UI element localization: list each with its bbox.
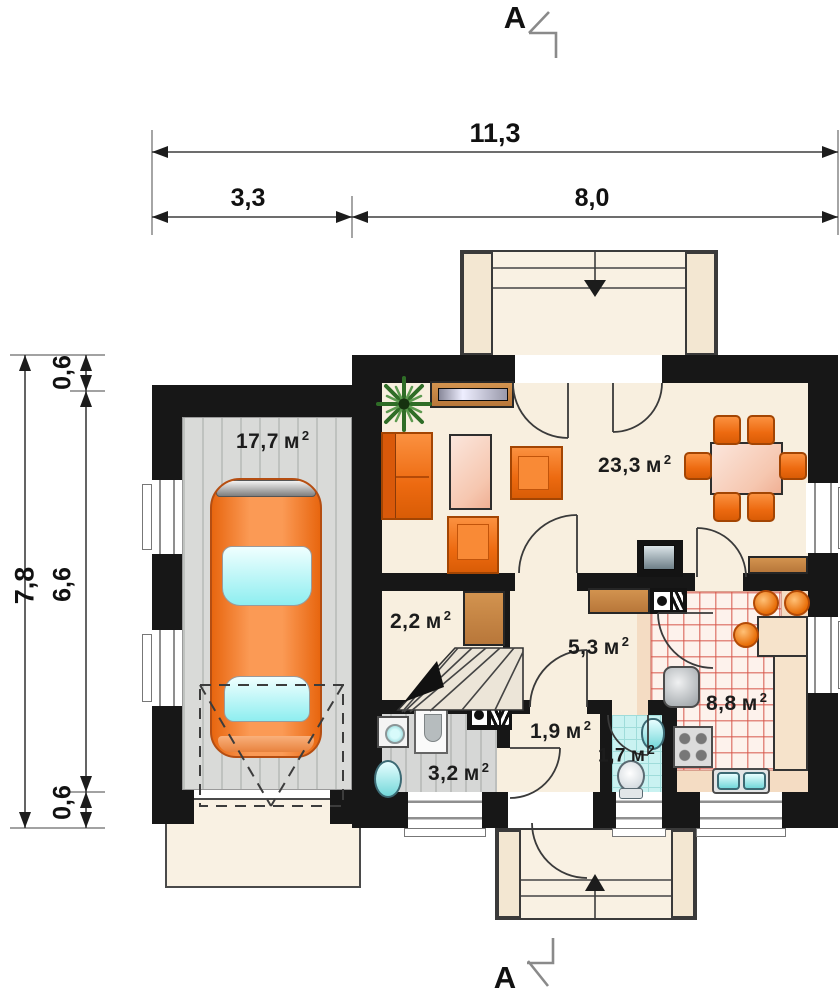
terrace-double-door [513,383,662,438]
area-sup: 2 [664,452,672,467]
dim-total-width: 11,3 [452,118,538,149]
area-sup: 2 [482,760,490,775]
area-unit: м [646,454,662,477]
room-area-value: 1,9 [530,720,561,743]
dim-interior-height: 6,6 [49,550,78,620]
room-label-kitchen: 8,8м2 [706,690,767,716]
dim-garage-width: 3,3 [213,184,283,213]
area-sup: 2 [647,742,655,757]
area-sup: 2 [622,634,630,649]
plant-icon [378,378,430,430]
area-sup: 2 [584,718,592,733]
dim-wall-top: 0,6 [49,338,78,408]
room-label-vestibule: 1,9м2 [530,718,591,744]
area-sup: 2 [444,608,452,623]
dimension-line-vertical-segments [80,355,92,828]
section-label-bottom: A [482,960,528,996]
area-unit: м [604,636,620,659]
stairs [398,648,523,712]
room-area-value: 1,7 [598,745,626,766]
room-label-hall: 5,3м2 [568,634,629,660]
plan-linework [0,0,840,1000]
area-unit: м [464,762,480,785]
room-area-value: 17,7 [236,430,279,453]
garage-door-swing [200,685,343,806]
kitchen-hall-door [658,613,713,668]
area-sup: 2 [302,428,310,443]
porch-steps [521,874,671,918]
dimension-ticks [10,130,838,828]
room-area-value: 3,2 [428,762,459,785]
room-label-bathroom: 3,2м2 [428,760,489,786]
room-area-value: 23,3 [598,454,641,477]
floor-plan: A A 11,3 3,3 8,0 7,8 0,6 6,6 0,6 17,7м2 … [0,0,840,1000]
dim-house-width: 8,0 [557,184,627,213]
living-hall-door [519,515,577,573]
area-sup: 2 [760,690,768,705]
room-label-garage: 17,7м2 [236,428,310,454]
entry-arrow-up-icon [585,874,605,891]
entrance-door [532,823,587,878]
bathroom-door [510,748,560,798]
room-label-wc: 1,7м2 [598,742,655,767]
room-label-storage: 2,2м2 [390,608,451,634]
area-unit: м [426,610,442,633]
room-area-value: 5,3 [568,636,599,659]
room-area-value: 2,2 [390,610,421,633]
room-label-living-dining: 23,3м2 [598,452,672,478]
area-unit: м [742,692,758,715]
terrace-steps [493,252,685,297]
area-unit: м [566,720,582,743]
dim-wall-bottom: 0,6 [49,768,78,838]
dim-total-height: 7,8 [10,551,41,621]
room-area-value: 8,8 [706,692,737,715]
section-mark-bottom [527,938,553,986]
area-unit: м [284,430,300,453]
kitchen-dining-door [697,528,746,577]
section-label-top: A [492,0,538,36]
area-unit: м [631,745,646,766]
